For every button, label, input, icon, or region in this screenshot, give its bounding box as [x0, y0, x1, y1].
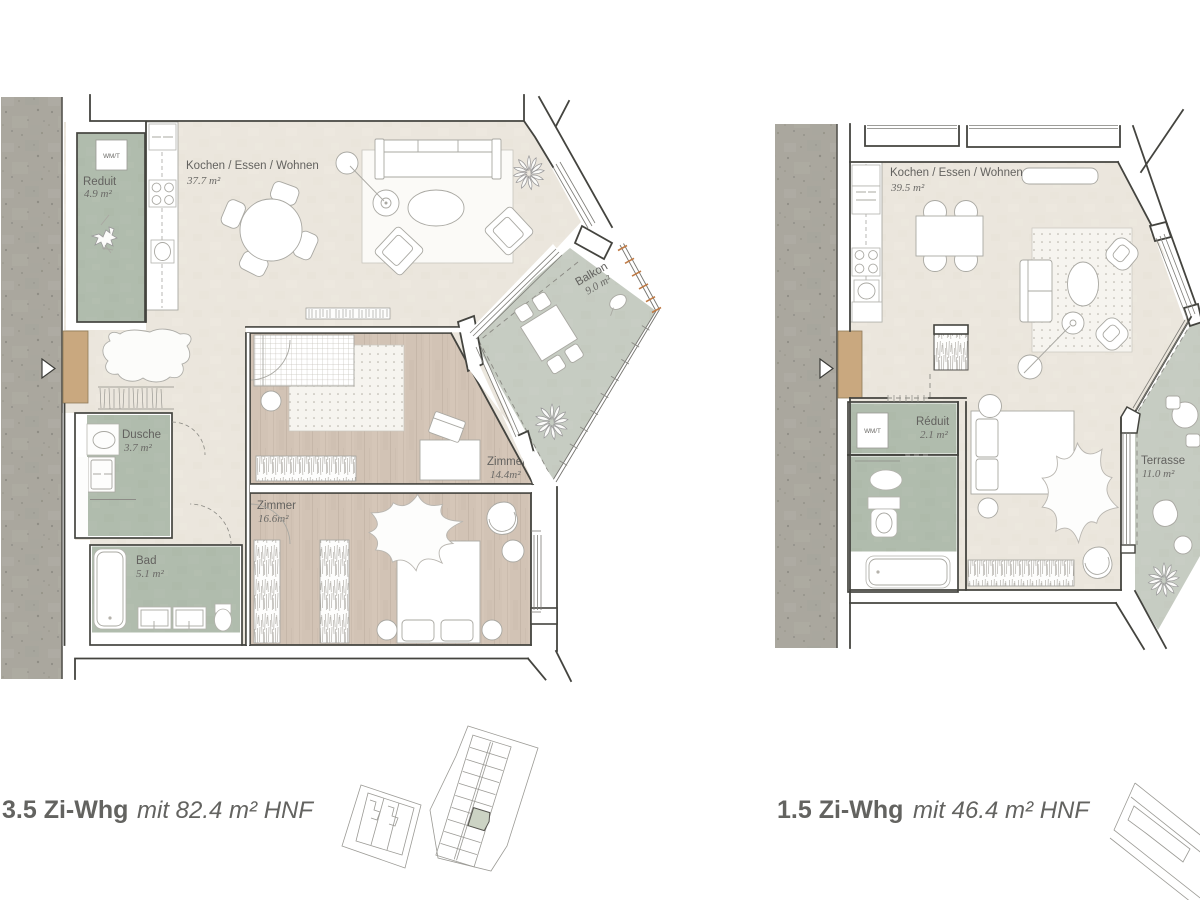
svg-text:Reduit: Reduit	[83, 176, 117, 188]
svg-text:WM/T: WM/T	[103, 153, 120, 160]
svg-text:5.1 m²: 5.1 m²	[136, 568, 164, 580]
svg-text:14.4m²: 14.4m²	[490, 469, 521, 481]
svg-text:Dusche: Dusche	[122, 429, 161, 441]
svg-text:Kochen / Essen / Wohnen: Kochen / Essen / Wohnen	[186, 160, 319, 172]
svg-text:WM/T: WM/T	[864, 428, 881, 435]
svg-text:Terrasse: Terrasse	[1141, 455, 1185, 467]
svg-text:mit 46.4 m² HNF: mit 46.4 m² HNF	[913, 797, 1090, 824]
svg-text:37.7 m²: 37.7 m²	[186, 175, 221, 187]
svg-text:3.5 Zi-Whg: 3.5 Zi-Whg	[2, 796, 128, 824]
svg-text:3.7 m²: 3.7 m²	[123, 442, 152, 454]
svg-text:1.5 Zi-Whg: 1.5 Zi-Whg	[777, 796, 903, 824]
svg-text:Réduit: Réduit	[916, 416, 950, 428]
svg-text:11.0 m²: 11.0 m²	[1142, 468, 1175, 480]
svg-text:2.1 m²: 2.1 m²	[920, 429, 948, 441]
svg-text:4.9 m²: 4.9 m²	[84, 188, 112, 200]
svg-text:Bad: Bad	[136, 555, 156, 567]
svg-text:39.5 m²: 39.5 m²	[890, 182, 925, 194]
svg-text:Kochen / Essen / Wohnen: Kochen / Essen / Wohnen	[890, 167, 1023, 179]
svg-text:mit 82.4 m² HNF: mit 82.4 m² HNF	[137, 797, 314, 824]
